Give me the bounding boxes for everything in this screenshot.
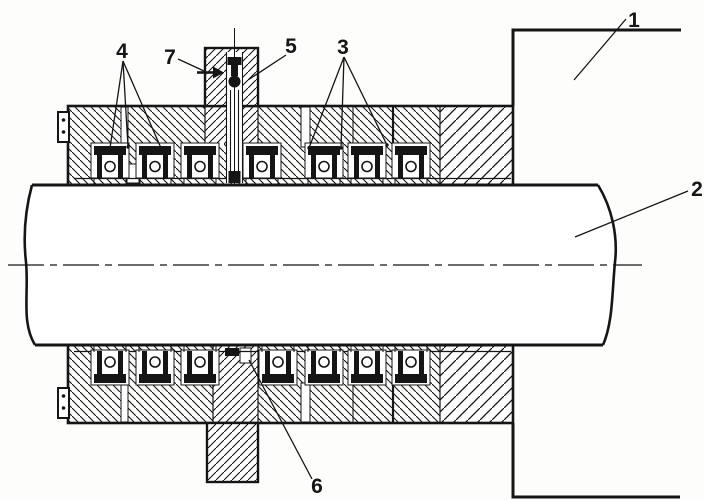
lower-seal-band (58, 345, 513, 423)
seal-element (181, 143, 219, 184)
callout-lower-gland: 6 (311, 475, 323, 498)
drawing-canvas: 1 2 3 4 5 6 7 (0, 0, 704, 500)
callout-shaft: 2 (691, 178, 703, 201)
callout-feed-pin: 7 (164, 46, 176, 69)
upper-left-tab (58, 112, 69, 142)
seal-element (259, 346, 297, 385)
seal-element (305, 143, 343, 184)
seal-element (136, 346, 174, 385)
seal-element (348, 143, 386, 184)
technical-drawing-shaft-seal-section: 1 2 3 4 5 6 7 (0, 0, 704, 500)
seal-element (392, 143, 430, 184)
shaft (8, 185, 642, 345)
lower-gland-block (207, 423, 258, 482)
seal-element (136, 143, 174, 184)
seal-element (392, 346, 430, 385)
seal-element (305, 346, 343, 385)
callout-seals-right: 3 (337, 36, 349, 59)
callout-upper-gland: 5 (285, 35, 297, 58)
seal-element (243, 143, 281, 184)
lower-left-tab (58, 388, 69, 418)
callout-seals-left: 4 (116, 40, 128, 63)
seal-element (91, 346, 129, 385)
seal-element (181, 346, 219, 385)
callout-housing: 1 (628, 9, 640, 32)
seal-element (348, 346, 386, 385)
